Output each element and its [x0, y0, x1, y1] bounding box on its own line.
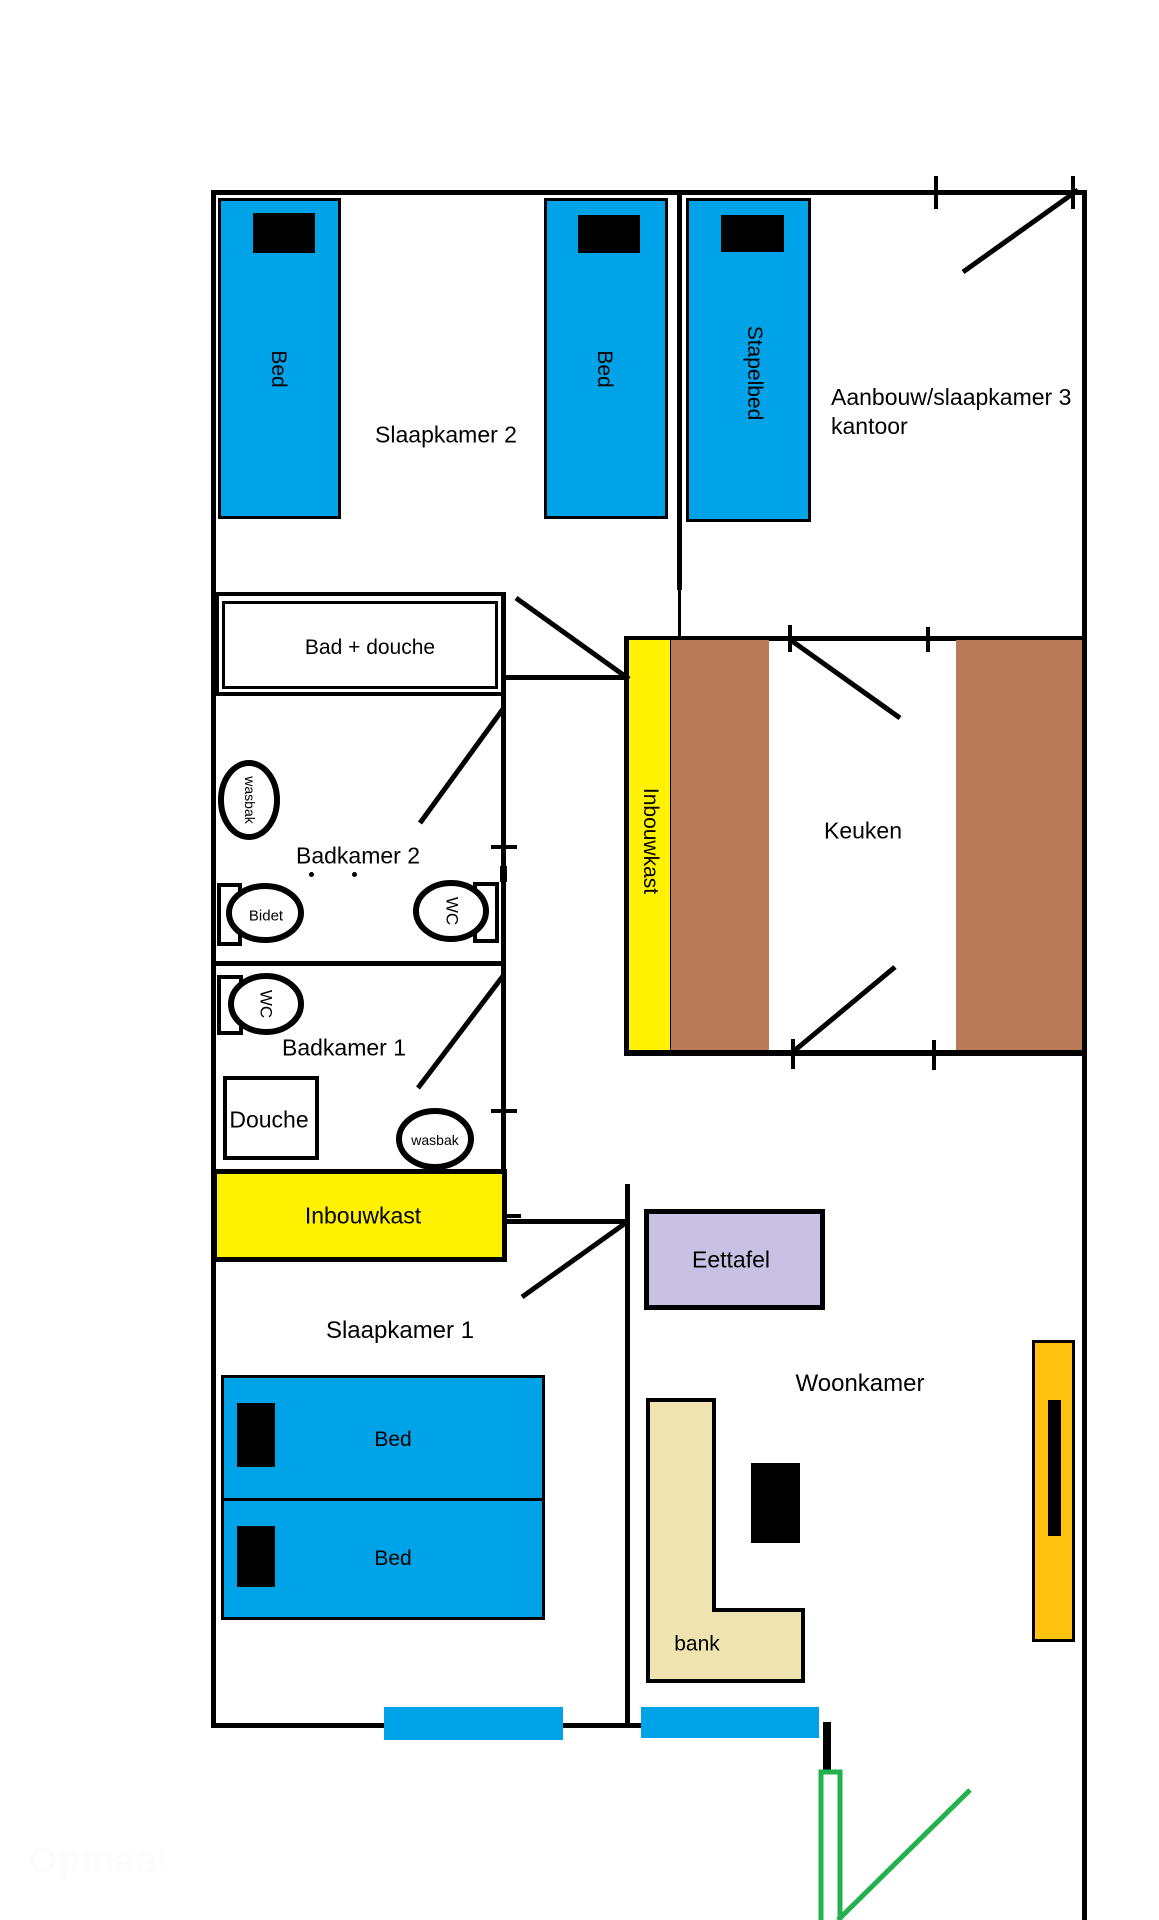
- svg-text:wasbak: wasbak: [242, 775, 258, 824]
- svg-text:wasbak: wasbak: [410, 1132, 459, 1148]
- svg-text:WC: WC: [257, 990, 276, 1018]
- svg-text:bank: bank: [674, 1633, 720, 1656]
- svg-text:WC: WC: [443, 897, 462, 925]
- svg-text:Bidet: Bidet: [249, 908, 284, 925]
